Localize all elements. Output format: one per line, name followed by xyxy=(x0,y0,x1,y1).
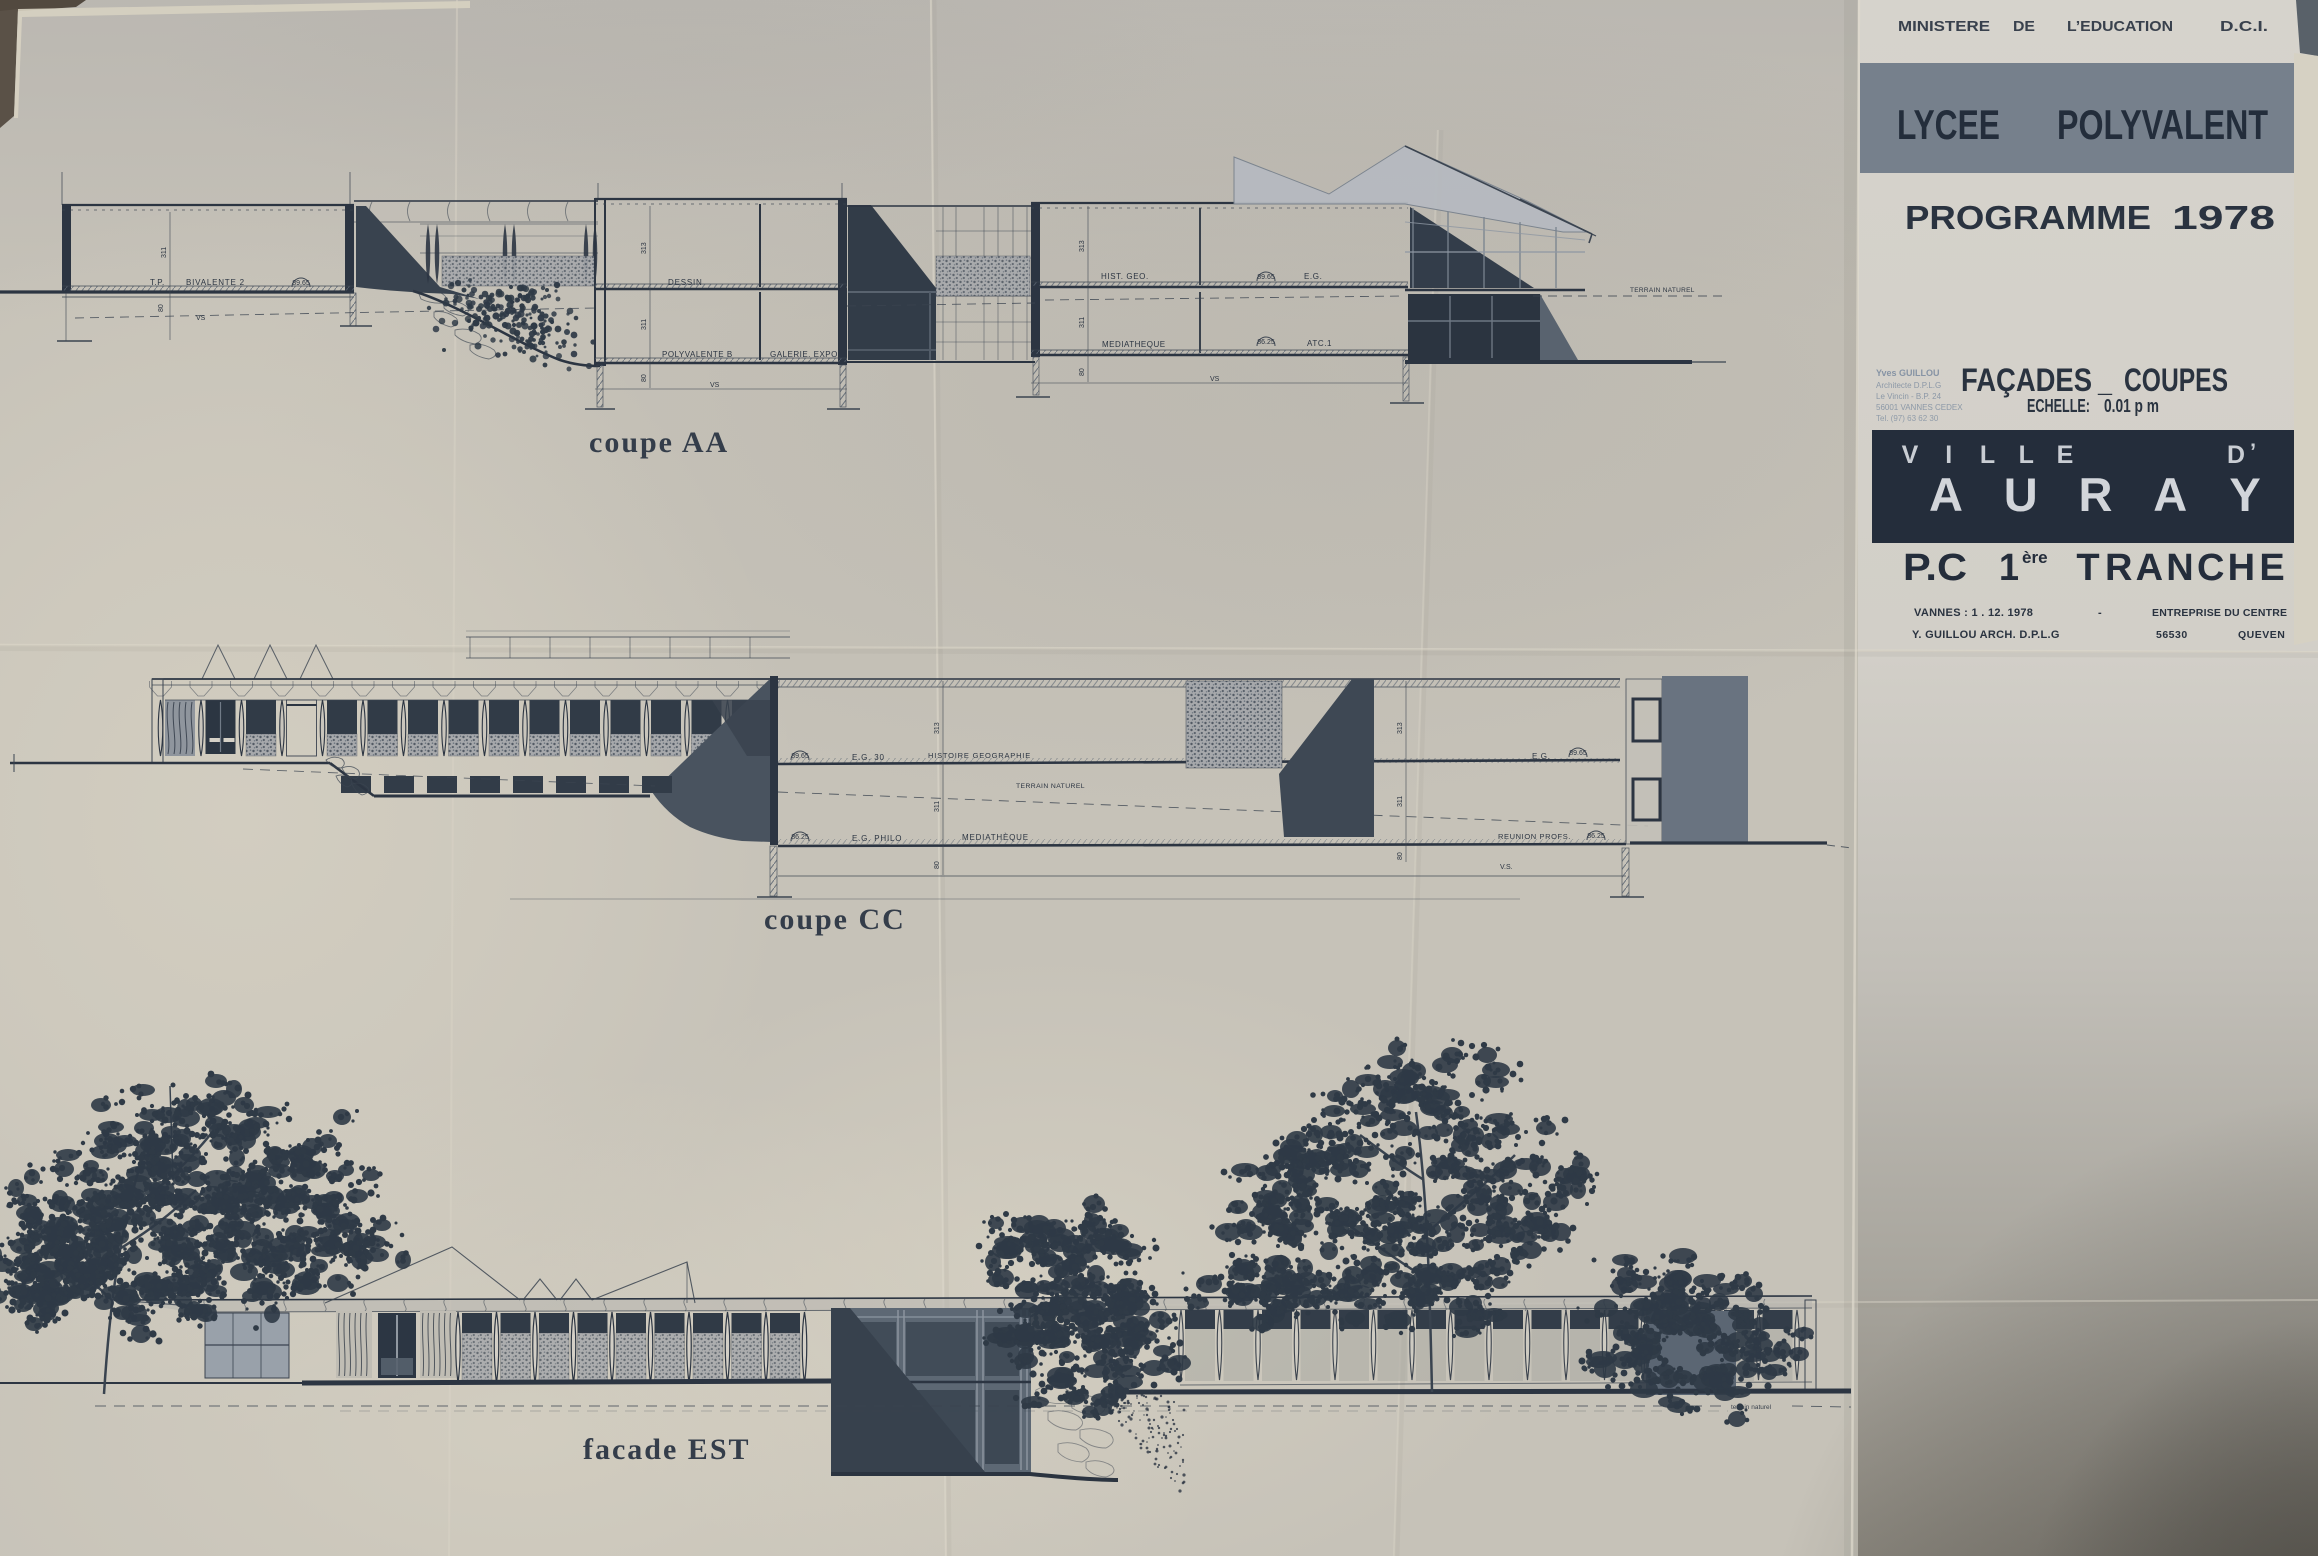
svg-text:89.65: 89.65 xyxy=(1257,274,1275,281)
svg-text:313: 313 xyxy=(1079,240,1086,252)
svg-text:VS: VS xyxy=(710,382,720,389)
svg-text:86.25: 86.25 xyxy=(1257,339,1275,346)
svg-text:80: 80 xyxy=(158,304,165,312)
svg-text:86.25: 86.25 xyxy=(791,834,809,841)
svg-text:89.65: 89.65 xyxy=(1569,750,1587,757)
svg-text:ATC.1: ATC.1 xyxy=(1307,339,1332,348)
svg-text:86.25: 86.25 xyxy=(1587,833,1605,840)
svg-text:E.G.: E.G. xyxy=(1532,752,1550,761)
svg-text:V.S.: V.S. xyxy=(1500,864,1513,871)
svg-text:313: 313 xyxy=(934,722,941,734)
svg-text:BIVALENTE 2: BIVALENTE 2 xyxy=(186,278,245,287)
svg-text:311: 311 xyxy=(161,247,168,258)
svg-text:80: 80 xyxy=(1397,852,1404,860)
svg-text:TERRAIN NATUREL: TERRAIN NATUREL xyxy=(1016,783,1085,790)
svg-text:REUNION PROFS.: REUNION PROFS. xyxy=(1498,832,1571,841)
svg-text:89.65: 89.65 xyxy=(292,280,310,287)
svg-text:311: 311 xyxy=(641,319,648,330)
svg-text:MEDIATHÈQUE: MEDIATHÈQUE xyxy=(962,833,1029,842)
svg-text:313: 313 xyxy=(1397,722,1404,734)
svg-text:coupe AA: coupe AA xyxy=(589,426,729,459)
svg-text:E.G. 30: E.G. 30 xyxy=(852,753,885,762)
svg-text:TERRAIN NATUREL: TERRAIN NATUREL xyxy=(1630,287,1695,294)
svg-text:80: 80 xyxy=(641,374,648,382)
svg-text:80: 80 xyxy=(1079,368,1086,376)
svg-text:311: 311 xyxy=(1079,317,1086,328)
svg-text:HISTOIRE GEOGRAPHIE: HISTOIRE GEOGRAPHIE xyxy=(928,751,1031,760)
svg-text:DESSIN: DESSIN xyxy=(668,278,703,287)
svg-text:POLYVALENTE B: POLYVALENTE B xyxy=(662,350,733,359)
svg-text:MEDIATHEQUE: MEDIATHEQUE xyxy=(1102,340,1166,349)
svg-text:313: 313 xyxy=(641,242,648,254)
svg-text:coupe CC: coupe CC xyxy=(764,903,906,936)
svg-text:T.P.: T.P. xyxy=(150,278,165,287)
svg-text:80: 80 xyxy=(934,861,941,869)
svg-text:89.65: 89.65 xyxy=(791,753,809,760)
svg-text:VS: VS xyxy=(1210,376,1220,383)
svg-text:E.G. PHILO: E.G. PHILO xyxy=(852,834,902,843)
svg-text:HIST. GEO.: HIST. GEO. xyxy=(1101,272,1149,281)
svg-text:GALERIE. EXPO: GALERIE. EXPO xyxy=(770,350,838,359)
svg-text:311: 311 xyxy=(1397,796,1404,807)
svg-text:E.G.: E.G. xyxy=(1304,272,1322,281)
svg-text:311: 311 xyxy=(934,801,941,812)
